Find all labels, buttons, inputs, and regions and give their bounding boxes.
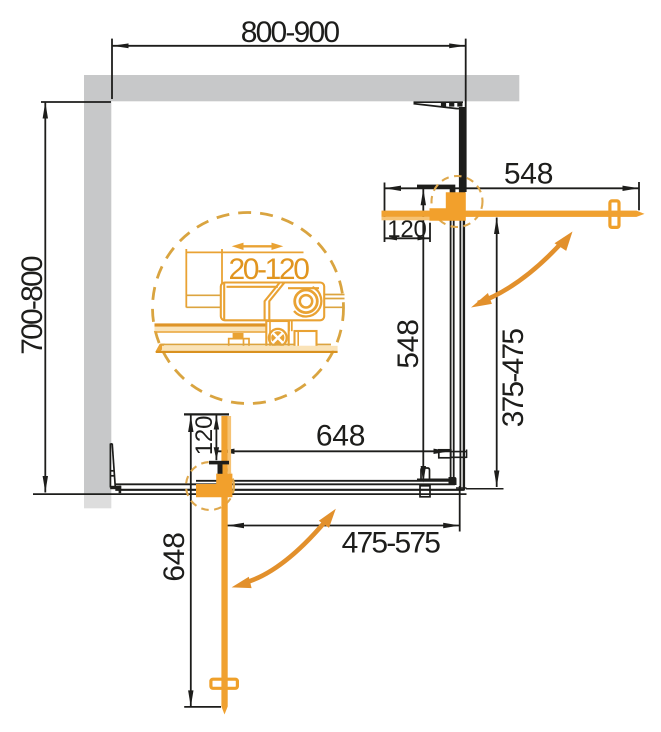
svg-text:20-120: 20-120 xyxy=(228,253,309,286)
svg-text:548: 548 xyxy=(392,319,425,368)
svg-text:120: 120 xyxy=(191,416,218,455)
svg-text:700-800: 700-800 xyxy=(16,256,49,355)
svg-text:648: 648 xyxy=(316,420,365,453)
svg-text:800-900: 800-900 xyxy=(241,16,340,49)
svg-text:475-575: 475-575 xyxy=(342,527,441,560)
svg-text:648: 648 xyxy=(158,532,191,581)
svg-text:548: 548 xyxy=(504,158,553,191)
svg-text:375-475: 375-475 xyxy=(497,329,530,428)
